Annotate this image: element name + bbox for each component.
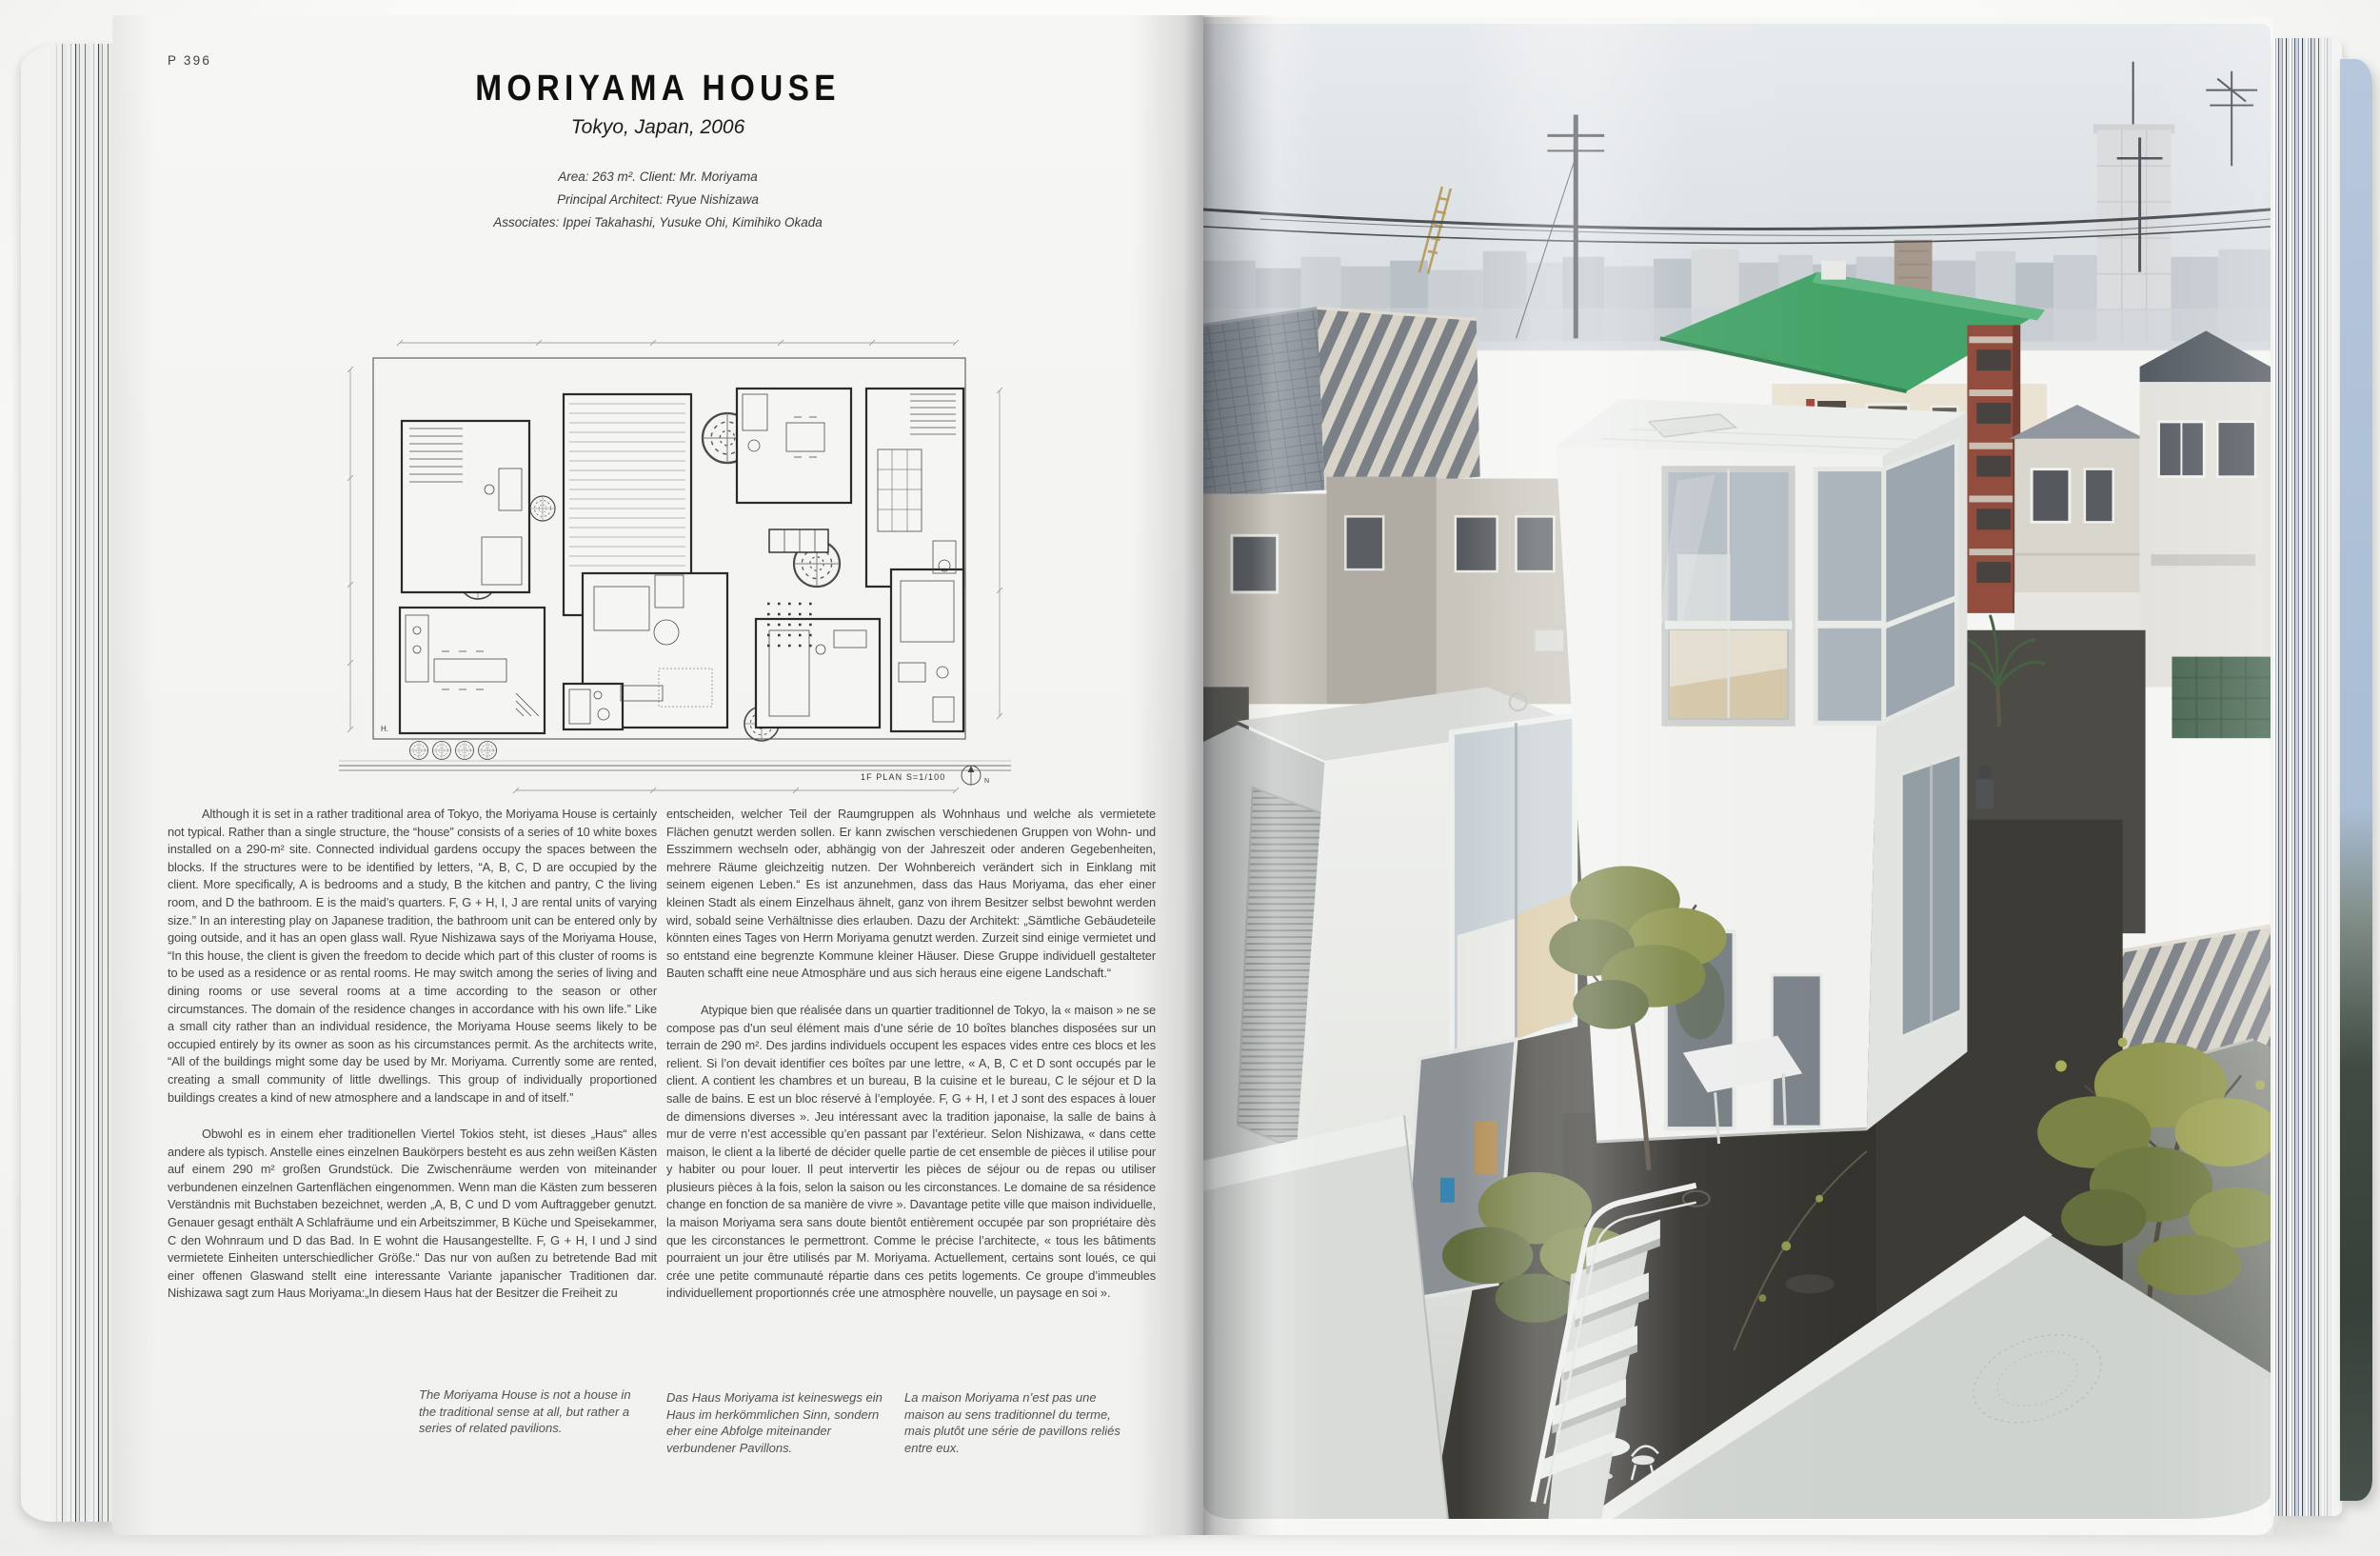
page-title: MORIYAMA HOUSE	[178, 69, 1138, 110]
page-subtitle: Tokyo, Japan, 2006	[112, 116, 1203, 139]
left-page-stack-edge[interactable]	[21, 44, 114, 1522]
credit-architect: Principal Architect: Ryue Nishizawa	[112, 189, 1203, 211]
caption-english: The Moriyama House is not a house in the…	[419, 1386, 649, 1437]
credit-area-client: Area: 263 m². Client: Mr. Moriyama	[112, 166, 1203, 189]
page-number: P 396	[168, 53, 211, 68]
floor-plan-drawing: H. 1F PLAN S=1/100 N	[339, 335, 1011, 798]
caption-french: La maison Moriyama n’est pas une maison …	[904, 1389, 1135, 1456]
book-spread: P 396 MORIYAMA HOUSE Tokyo, Japan, 2006 …	[0, 0, 2380, 1556]
project-credits: Area: 263 m². Client: Mr. Moriyama Princ…	[112, 166, 1203, 234]
paragraph-german-start: Obwohl es in einem eher traditionellen V…	[168, 1126, 657, 1303]
plan-scale-label: 1F PLAN S=1/100	[861, 772, 945, 782]
moriyama-photo[interactable]	[1203, 24, 2271, 1519]
book-fore-edge	[2340, 59, 2372, 1501]
paragraph-french: Atypique bien que réalisée dans un quart…	[666, 1002, 1156, 1303]
caption-german: Das Haus Moriyama ist keineswegs ein Hau…	[666, 1389, 893, 1456]
photo-haze	[1203, 24, 2271, 1519]
right-page-stack-edge[interactable]	[2273, 38, 2342, 1516]
text-column-2: entscheiden, welcher Teil der Raumgruppe…	[666, 806, 1156, 1322]
plan-corner-label: H.	[381, 725, 388, 733]
right-page	[1203, 17, 2273, 1535]
plan-road-lines	[339, 761, 1011, 770]
svg-text:N: N	[984, 778, 989, 785]
text-column-1: Although it is set in a rather tradition…	[168, 806, 657, 1322]
paragraph-german-end: entscheiden, welcher Teil der Raumgruppe…	[666, 806, 1156, 983]
north-arrow-icon: N	[962, 766, 989, 785]
credit-associates: Associates: Ippei Takahashi, Yusuke Ohi,…	[112, 211, 1203, 234]
paragraph-english: Although it is set in a rather tradition…	[168, 806, 657, 1107]
left-page: P 396 MORIYAMA HOUSE Tokyo, Japan, 2006 …	[112, 15, 1203, 1535]
